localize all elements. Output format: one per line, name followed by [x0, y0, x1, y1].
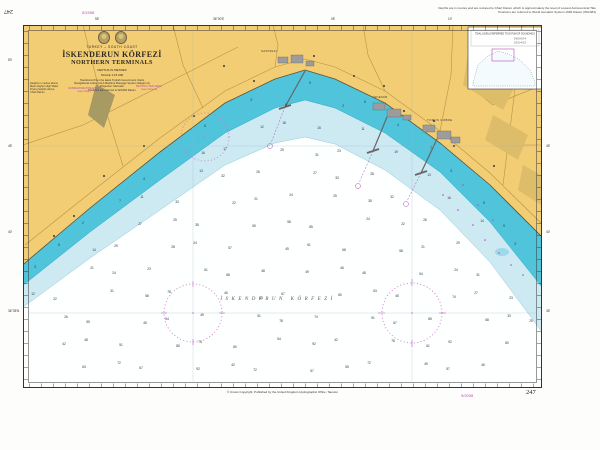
sounding-value: 55	[252, 224, 256, 228]
sounding-value: 9	[503, 224, 505, 228]
sounding-value: 31	[476, 273, 480, 277]
sounding-value: 2	[342, 104, 344, 108]
sounding-value: 4	[397, 123, 399, 127]
correction-stamp-top: 5/1998	[82, 10, 94, 15]
sounding-value: 29	[456, 241, 460, 245]
graticule-tick-label: 36°00'E	[213, 17, 224, 21]
sounding-value: 3	[450, 169, 452, 173]
sounding-value: 33	[335, 176, 339, 180]
sounding-value: 35	[195, 223, 199, 227]
sounding-value: 32	[390, 195, 394, 199]
sounding-value: 27	[138, 222, 142, 226]
sounding-value: 55	[345, 365, 349, 369]
sounding-value: 78	[167, 290, 171, 294]
sounding-value: 21	[90, 266, 94, 270]
sounding-value: 58	[399, 249, 403, 253]
sounding-value: 24	[289, 193, 293, 197]
sounding-value: 74	[314, 315, 318, 319]
sounding-value: 46	[481, 363, 485, 367]
sounding-value: 92	[448, 340, 452, 344]
notice-line-2: Positions are referred to World Geodetic…	[438, 10, 596, 14]
sounding-value: 54	[277, 337, 281, 341]
sounding-value: 6	[364, 100, 366, 104]
sounding-value: 28	[370, 172, 374, 176]
sounding-value: 16	[201, 151, 205, 155]
margin-notices: Depths are in metres and are reduced to …	[438, 6, 596, 14]
sounding-value: 8	[285, 103, 287, 107]
chart-number-top: 247	[4, 8, 13, 14]
sounding-value: 45	[143, 321, 147, 325]
sounding-value: 85	[309, 225, 313, 229]
sounding-value: 13	[199, 169, 203, 173]
sounding-value: 92	[312, 342, 316, 346]
sounding-value: 80	[233, 345, 237, 349]
sounding-value: 5	[483, 201, 485, 205]
chart-number-bottom: 247	[526, 389, 536, 396]
sounding-value: 42	[231, 363, 235, 367]
sounding-value: 13	[427, 173, 431, 177]
graticule-tick-label: 45'	[8, 144, 12, 148]
sounding-value: 80	[505, 341, 509, 345]
sounding-value: 78	[391, 339, 395, 343]
graticule-tick-label: 40'	[8, 230, 12, 234]
sounding-value: 57	[228, 246, 232, 250]
sounding-value: 58	[287, 220, 291, 224]
sounding-value: 49	[200, 313, 204, 317]
sounding-value: 4	[143, 177, 145, 181]
sounding-value: 16	[447, 196, 451, 200]
sounding-value: 92	[196, 367, 200, 371]
sounding-value: 42	[334, 338, 338, 342]
sounding-value: 63	[373, 289, 377, 293]
sounding-value: 24	[366, 217, 370, 221]
sounding-value: 26	[256, 170, 260, 174]
soundings-layer: 3125222642214215548637292431517241127235…	[23, 25, 542, 388]
sounding-value: 67	[393, 321, 397, 325]
sounding-value: 63	[259, 296, 263, 300]
sounding-value: 51	[119, 343, 123, 347]
sounding-value: 31	[315, 153, 319, 157]
sounding-value: 7	[119, 199, 121, 203]
sounding-value: 31	[110, 289, 114, 293]
sounding-value: 63	[82, 365, 86, 369]
sounding-value: 61	[426, 344, 430, 348]
sounding-value: 45	[395, 294, 399, 298]
sounding-value: 24	[193, 241, 197, 245]
sounding-value: 27	[474, 291, 478, 295]
sounding-value: 72	[117, 361, 121, 365]
chart-canvas: TIDAL LEVELS REFERRED TO DATUM OF SOUNDI…	[23, 25, 542, 388]
sounding-value: 85	[428, 317, 432, 321]
sounding-value: 45	[285, 247, 289, 251]
sounding-value: 23	[509, 296, 513, 300]
sounding-value: 25	[173, 218, 177, 222]
sounding-value: 7	[430, 146, 432, 150]
graticule-tick-label: 45'	[546, 144, 550, 148]
sounding-value: 33	[507, 314, 511, 318]
sounding-value: 26	[423, 218, 427, 222]
sounding-value: 42	[62, 342, 66, 346]
sounding-value: 72	[253, 368, 257, 372]
sounding-value: 23	[337, 149, 341, 153]
sounding-value: 12	[31, 292, 35, 296]
sounding-value: 46	[224, 291, 228, 295]
sounding-value: 55	[86, 320, 90, 324]
sounding-value: 24	[112, 271, 116, 275]
sounding-value: 74	[198, 340, 202, 344]
sounding-value: 11	[140, 195, 143, 199]
sounding-value: 68	[226, 273, 230, 277]
sounding-value: 51	[371, 316, 375, 320]
sounding-value: 21	[421, 245, 425, 249]
correction-stamp-bottom: 9/2008	[461, 393, 473, 398]
sounding-value: 25	[529, 319, 533, 323]
sounding-value: 48	[362, 271, 366, 275]
sounding-value: 12	[260, 125, 264, 129]
sounding-value: 68	[485, 318, 489, 322]
sounding-value: 11	[361, 127, 364, 131]
sounding-value: 33	[175, 200, 179, 204]
sounding-value: 22	[401, 222, 405, 226]
sounding-value: 3	[34, 265, 36, 269]
sounding-value: 85	[176, 344, 180, 348]
sounding-value: 27	[313, 171, 317, 175]
sounding-value: 6	[204, 124, 206, 128]
sounding-value: 25	[333, 194, 337, 198]
sounding-value: 51	[257, 314, 261, 318]
sounding-value: 32	[221, 174, 225, 178]
sounding-value: 26	[64, 315, 68, 319]
graticule-tick-label: 10'	[448, 17, 452, 21]
sounding-value: 15	[317, 126, 321, 130]
sounding-value: 28	[171, 245, 175, 249]
graticule-tick-label: 35'	[546, 309, 550, 313]
sounding-value: 3	[250, 98, 252, 102]
sounding-value: 61	[204, 268, 208, 272]
sounding-value: 18	[282, 121, 286, 125]
graticule-tick-label: 36°35'N	[8, 309, 19, 313]
sounding-value: 5	[309, 81, 311, 85]
sounding-value: 29	[114, 244, 118, 248]
graticule-tick-label: 55'	[95, 17, 99, 21]
sounding-value: 67	[281, 292, 285, 296]
sounding-value: 2	[82, 221, 84, 225]
sounding-value: 22	[53, 297, 57, 301]
sounding-value: 72	[367, 361, 371, 365]
sounding-value: 17	[223, 147, 227, 151]
sounding-value: 5	[58, 243, 60, 247]
sounding-value: 54	[419, 272, 423, 276]
sounding-value: 68	[342, 248, 346, 252]
sounding-value: 49	[424, 362, 428, 366]
sounding-value: 21	[254, 197, 258, 201]
sounding-value: 57	[310, 369, 314, 373]
graticule-tick-label: 05'	[331, 17, 335, 21]
sounding-value: 48	[261, 269, 265, 273]
sounding-value: 35	[368, 199, 372, 203]
sounding-value: 3	[514, 242, 516, 246]
sounding-value: 74	[452, 295, 456, 299]
sounding-value: 22	[232, 201, 236, 205]
sounding-value: 49	[305, 270, 309, 274]
sounding-value: 67	[139, 366, 143, 370]
sounding-value: 58	[145, 294, 149, 298]
sounding-value: 61	[307, 243, 311, 247]
sounding-value: 29	[280, 148, 284, 152]
sounding-value: 19	[394, 150, 398, 154]
nautical-chart-page: { "chart": { "number": "247", "title_blo…	[0, 0, 600, 450]
sounding-value: 57	[446, 367, 450, 371]
sounding-value: 14	[92, 248, 96, 252]
sounding-value: 24	[454, 268, 458, 272]
sounding-value: 46	[340, 266, 344, 270]
sounding-value: 78	[279, 319, 283, 323]
graticule-tick-label: 50'	[8, 58, 12, 62]
sounding-value: 48	[84, 338, 88, 342]
sounding-value: 80	[338, 293, 342, 297]
graticule-tick-label: 40'	[546, 230, 550, 234]
sounding-value: 54	[165, 317, 169, 321]
sounding-value: 14	[480, 219, 484, 223]
sounding-value: 23	[147, 267, 151, 271]
